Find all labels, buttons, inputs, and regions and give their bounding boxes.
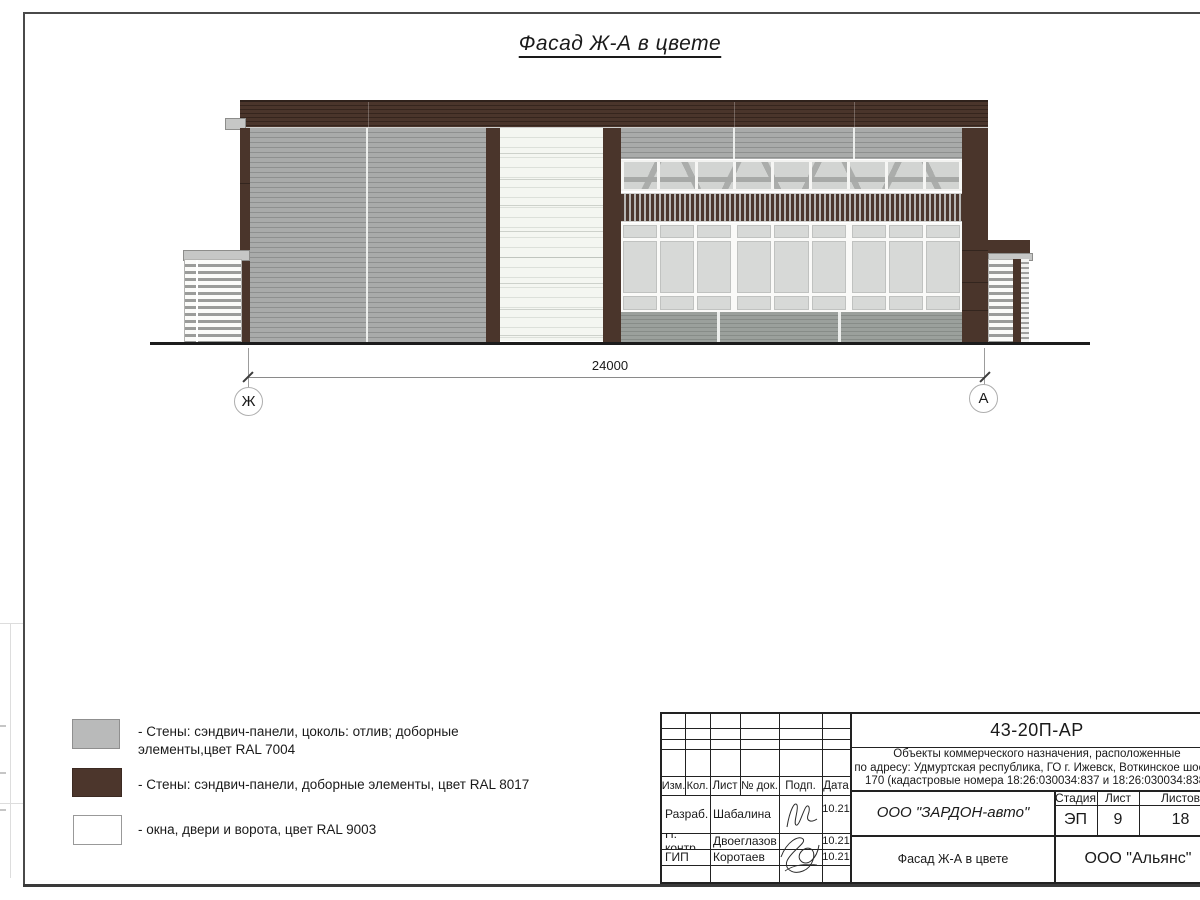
clerestory-mullion — [959, 162, 962, 189]
window-column — [852, 225, 886, 310]
tb-description-line: 170 (кадастровые номера 18:26:030034:837… — [865, 775, 1200, 789]
pilaster-joint — [962, 310, 988, 311]
gate-white — [500, 128, 603, 341]
screen-post — [1013, 259, 1021, 342]
signature — [777, 831, 823, 879]
extension-line — [984, 348, 985, 389]
window-pane — [926, 225, 960, 238]
tb-description: Объекты коммерческого назначения, распол… — [852, 747, 1200, 790]
tb-stage-header: Стадия — [1054, 790, 1097, 805]
window-pane — [852, 296, 886, 310]
panel-joint — [733, 128, 735, 159]
window-pane — [660, 296, 694, 310]
axis-marker-left: Ж — [234, 387, 263, 416]
tb-date: 10.21 — [822, 849, 850, 865]
window-pane — [623, 296, 657, 310]
window-pane — [812, 296, 846, 310]
window-column — [812, 225, 846, 310]
pilaster-joint — [962, 282, 988, 283]
tb-header-data: Дата — [822, 776, 850, 795]
window-column — [926, 225, 960, 310]
window-pane — [852, 241, 886, 293]
louver-band — [621, 193, 962, 222]
window-pane — [660, 225, 694, 238]
window-column — [660, 225, 694, 310]
tb-description-line: Объекты коммерческого назначения, распол… — [893, 748, 1180, 762]
tb-doc-number: 43-20П-АР — [852, 714, 1200, 747]
tb-header-doc: № док. — [740, 776, 779, 795]
clerestory-mullion — [695, 162, 698, 189]
window-pane — [774, 241, 808, 293]
window-pane — [737, 241, 771, 293]
window-grid — [621, 223, 962, 312]
window-column — [697, 225, 731, 310]
window-pane — [660, 241, 694, 293]
window-pane — [697, 225, 731, 238]
pilaster-joint — [240, 183, 250, 184]
window-column — [889, 225, 923, 310]
clerestory-mullion — [771, 162, 774, 189]
tb-date: 10.21 — [822, 799, 850, 819]
upper-band-right — [621, 128, 962, 159]
clerestory-mullion — [847, 162, 850, 189]
window-column — [774, 225, 808, 310]
window-pane — [852, 225, 886, 238]
cornice-joint — [734, 102, 735, 128]
extension-line — [248, 348, 249, 392]
window-pane — [623, 241, 657, 293]
clerestory-mullion — [657, 162, 660, 189]
cornice-band — [240, 100, 988, 128]
tb-firm: ООО "Альянс" — [1054, 835, 1200, 882]
tb-header-podp: Подп. — [779, 776, 822, 795]
window-pane — [774, 225, 808, 238]
legend-swatch-white — [73, 815, 122, 845]
tb-name: Шабалина — [710, 795, 782, 833]
clerestory-mullion — [809, 162, 812, 189]
tb-role: Разраб. — [662, 795, 713, 833]
panel-joint — [838, 312, 841, 342]
wall-panel-left — [250, 128, 486, 343]
pilaster-joint — [962, 250, 988, 251]
window-pane — [926, 241, 960, 293]
title-block: Изм. Кол. Лист № док. Подп. Дата Разраб.… — [660, 712, 1200, 884]
tb-header-kol: Кол. — [685, 776, 710, 795]
screen-joint — [196, 260, 198, 343]
window-pane — [889, 296, 923, 310]
legend-label: - Стены: сэндвич-панели, цоколь: отлив; … — [138, 723, 558, 759]
pilaster — [486, 128, 500, 343]
tb-date: 10.21 — [822, 833, 850, 849]
tb-stage-value: ЭП — [1054, 805, 1097, 835]
window-pane — [737, 225, 771, 238]
panel-joint — [366, 128, 368, 343]
clerestory-mullion — [885, 162, 888, 189]
window-pane — [697, 241, 731, 293]
pilaster — [603, 128, 621, 343]
clerestory-mullion — [621, 162, 624, 189]
tb-header-list: Лист — [710, 776, 740, 795]
louvered-screen-left — [184, 259, 242, 344]
window-pane — [889, 225, 923, 238]
window-pane — [812, 225, 846, 238]
ground-line — [150, 342, 1090, 345]
tb-name: Коротаев — [710, 849, 782, 865]
plinth-band — [621, 312, 962, 342]
signature — [781, 797, 821, 833]
pilaster — [962, 128, 988, 343]
cornice-joint — [854, 102, 855, 128]
window-pane — [737, 296, 771, 310]
legend-label: - Стены: сэндвич-панели, доборные элемен… — [138, 776, 598, 794]
window-pane — [889, 241, 923, 293]
louvered-screen-right-narrow — [1021, 259, 1029, 342]
window-column — [623, 225, 657, 310]
tb-listov-header: Листов — [1139, 790, 1200, 805]
tb-role: ГИП — [662, 849, 713, 865]
cornice-joint — [368, 102, 369, 128]
tb-name: Двоеглазов — [710, 833, 782, 849]
tb-description-line: по адресу: Удмуртская республика, ГО г. … — [854, 762, 1200, 776]
window-pane — [926, 296, 960, 310]
tb-drawing-name: Фасад Ж-А в цвете — [852, 835, 1054, 882]
window-pane — [812, 241, 846, 293]
louvered-screen-right — [988, 259, 1015, 344]
tb-header-izm: Изм. — [662, 776, 685, 795]
window-pane — [697, 296, 731, 310]
tb-role: Н. контр. — [662, 833, 713, 849]
window-pane — [774, 296, 808, 310]
dimension-value: 24000 — [550, 358, 670, 373]
legend-swatch-brown — [72, 768, 122, 797]
dimension-line — [248, 377, 985, 378]
window-pane — [623, 225, 657, 238]
clerestory-mullion — [733, 162, 736, 189]
panel-joint — [717, 312, 720, 342]
legend-label: - окна, двери и ворота, цвет RAL 9003 — [138, 821, 558, 839]
clerestory-mullion — [923, 162, 926, 189]
tb-sheet-number: 9 — [1097, 805, 1139, 835]
tb-sheets-total: 18 — [1139, 805, 1200, 835]
canopy-right — [988, 240, 1030, 253]
window-column — [737, 225, 771, 310]
panel-joint — [853, 128, 855, 159]
axis-marker-right: А — [969, 384, 998, 413]
tb-company: ООО "ЗАРДОН-авто" — [852, 790, 1054, 835]
clerestory-strip — [621, 160, 962, 191]
tb-list-header: Лист — [1097, 790, 1139, 805]
legend-swatch-gray — [72, 719, 120, 749]
